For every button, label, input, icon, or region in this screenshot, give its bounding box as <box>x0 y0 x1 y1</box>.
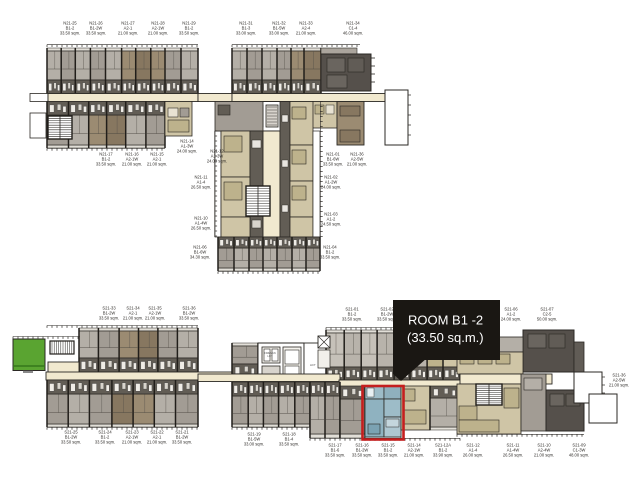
svg-text:LIFT: LIFT <box>267 355 273 358</box>
svg-text:LIFT: LIFT <box>310 363 316 367</box>
